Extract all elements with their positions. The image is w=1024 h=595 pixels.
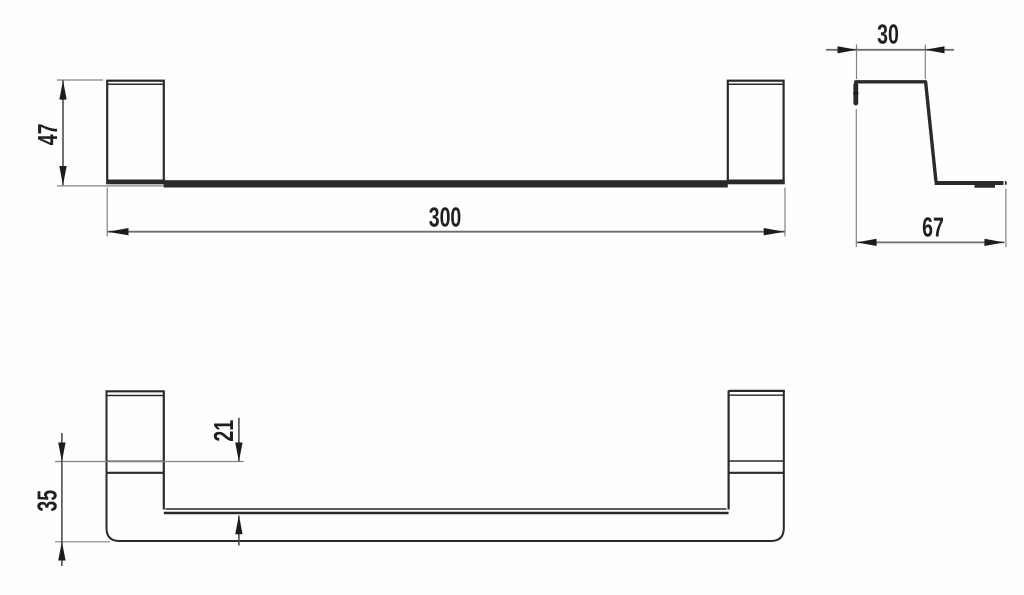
svg-text:67: 67	[922, 212, 944, 243]
svg-text:30: 30	[877, 19, 899, 50]
svg-text:21: 21	[208, 420, 239, 442]
svg-text:300: 300	[429, 202, 462, 233]
svg-text:35: 35	[32, 490, 63, 512]
svg-text:47: 47	[32, 124, 63, 146]
